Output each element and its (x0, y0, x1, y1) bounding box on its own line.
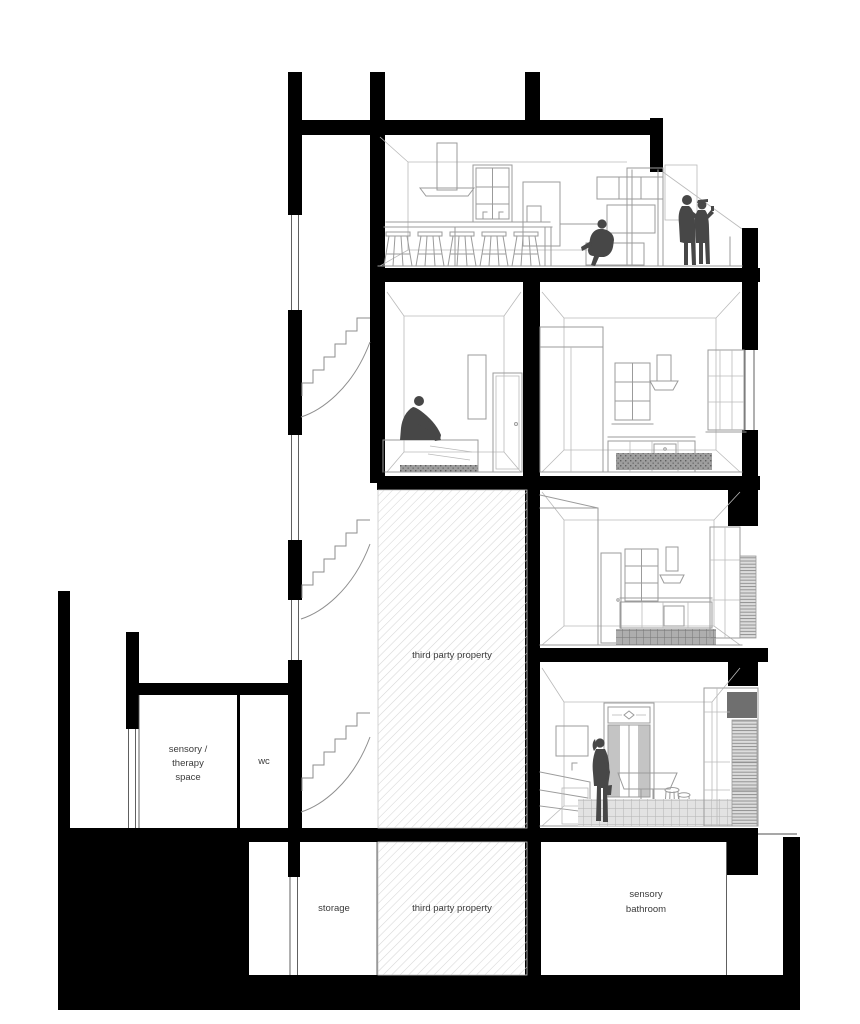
tv-screen (607, 205, 655, 233)
shutter-louvers-f3 (740, 556, 756, 638)
fridge-cabinet (540, 347, 603, 472)
stair-flight-1 (301, 318, 370, 417)
second-floor-bedroom (383, 292, 522, 472)
stair-window-2 (292, 435, 299, 540)
oven-icon (527, 206, 541, 222)
left-wall-mid1 (288, 310, 302, 435)
label-sensory-therapy-1: sensory / (169, 744, 208, 755)
bulkhead (540, 327, 603, 347)
rear-extension-window (129, 729, 136, 828)
staircase (301, 318, 370, 812)
top-floor-window (470, 165, 515, 222)
label-wc: wc (257, 756, 270, 767)
upper-cabinets (597, 177, 663, 199)
kitchen-window-f3 (625, 549, 658, 601)
rug-f2 (616, 453, 712, 470)
right-window-f3 (710, 527, 756, 638)
rear-roof-slab (126, 683, 298, 695)
label-sensory-therapy-2: therapy (172, 758, 204, 769)
shutter-louvers-ground (732, 720, 757, 826)
couple-on-terrace (679, 195, 714, 265)
right-window-f2-3d (706, 350, 746, 432)
label-sensory-therapy-3: space (175, 772, 200, 783)
middle-wall-f2 (523, 282, 540, 476)
rear-parapet-wall (126, 632, 139, 729)
label-storage: storage (318, 903, 350, 914)
bed-base-shadow (400, 465, 478, 472)
tall-volume-f3 (540, 495, 598, 645)
section-drawing-canvas: third party property sensory / therapy s… (0, 0, 860, 1024)
right-wall-f2-lower (742, 430, 758, 478)
stair-window-1 (292, 215, 299, 310)
person-sitting-on-bed (400, 396, 441, 441)
roof-slab (288, 120, 650, 135)
second-floor-kitchen (540, 292, 746, 472)
floor-slab-second (377, 476, 760, 490)
sensory-wc-divider (237, 695, 240, 828)
island-extractor-hood (420, 143, 474, 196)
stair-window-3 (292, 600, 299, 660)
floor-slab-first (525, 648, 768, 662)
label-sensory-bathroom-1: sensory (629, 889, 663, 900)
rug-ground (578, 799, 736, 826)
bedroom-door (493, 373, 522, 472)
roof-step-wall (650, 118, 663, 172)
kitchen-counter-f3 (620, 598, 712, 628)
wall-extractor-hood-f3 (660, 547, 684, 583)
kitchen-window-f2 (612, 363, 653, 424)
wall-extractor-hood-f2 (650, 355, 678, 390)
ground-floor-room (540, 668, 758, 826)
bedroom-window (468, 355, 486, 419)
basement-door-opening (290, 877, 298, 975)
oven-icon (664, 606, 684, 626)
ground-slab (58, 828, 758, 842)
rear-left-wall (58, 591, 70, 828)
stair-flight-2 (301, 520, 370, 619)
right-wall-f2-upper (742, 282, 758, 350)
basement-stub-wall (288, 842, 300, 877)
rug-f3 (616, 629, 716, 645)
top-floor-room (378, 137, 742, 266)
kitchen-island (384, 222, 552, 266)
floor-slab-top (372, 268, 760, 282)
bed (383, 440, 478, 472)
label-sensory-bathroom-2: bathroom (626, 904, 666, 915)
right-wall-f3-block (728, 490, 758, 526)
basement-right-stub (727, 842, 758, 875)
right-wall-ground-block (728, 662, 758, 686)
faucet-icon (572, 763, 577, 770)
third-floor-kitchen (540, 492, 756, 645)
right-facade-window-f2 (745, 350, 754, 430)
left-wall-mid2 (288, 540, 302, 600)
label-third-party-upper: third party property (412, 650, 492, 661)
basement-middle-wall (525, 842, 541, 975)
upper-cabinet-ground (556, 726, 588, 756)
stair-flight-3 (301, 713, 370, 812)
foundation-mass (58, 842, 249, 1010)
chimney (525, 72, 540, 120)
sliding-door (627, 168, 663, 266)
label-third-party-basement: third party property (412, 903, 492, 914)
transom-slats (727, 692, 757, 718)
basement-right-wall (783, 837, 800, 975)
left-wall-top (288, 72, 302, 215)
building-section-svg: third party property sensory / therapy s… (0, 0, 860, 1024)
basement-slab (249, 975, 800, 1010)
